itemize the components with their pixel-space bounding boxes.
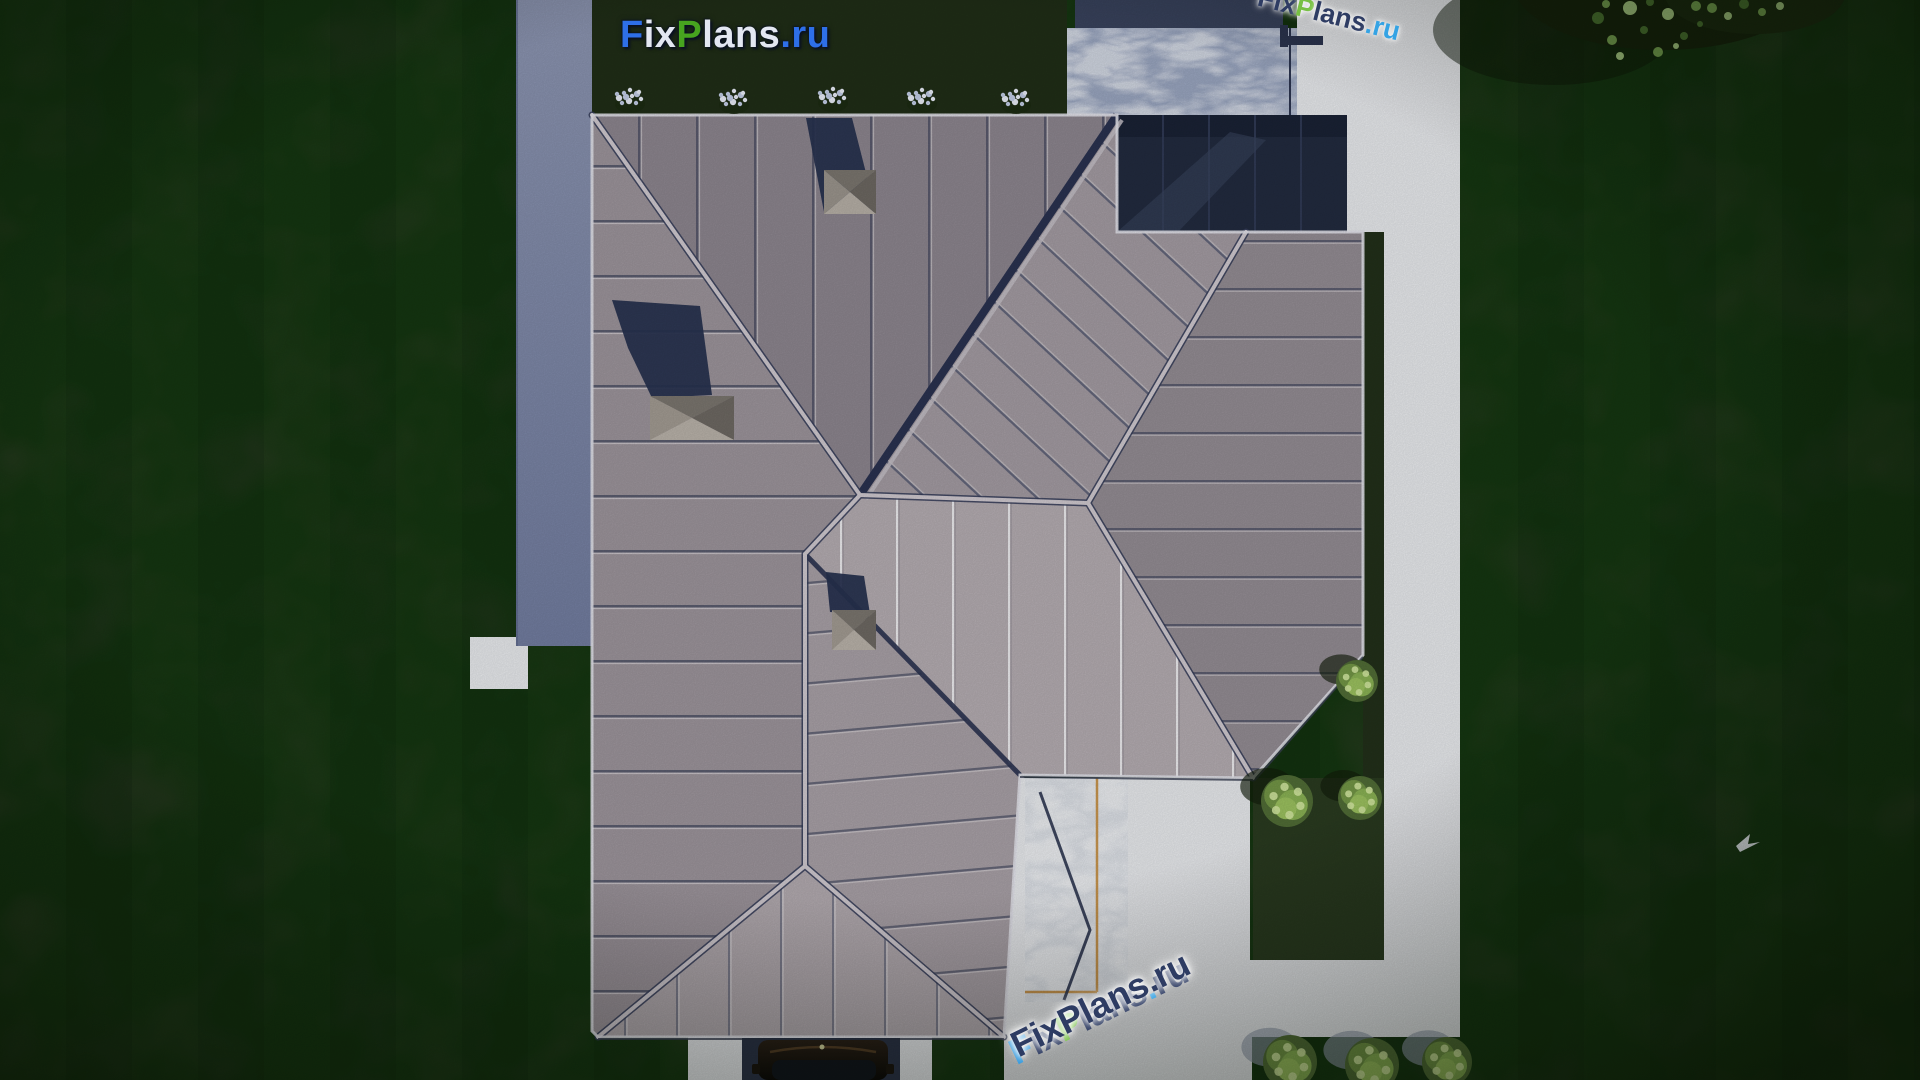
film-grain (0, 0, 1920, 1080)
scene-svg (0, 0, 1920, 1080)
render-canvas: FixPlans.ru FixPlans.ru FixPlans.ru FixP… (0, 0, 1920, 1080)
watermark-letter: ix (644, 14, 677, 56)
watermark-letter: .ru (780, 14, 830, 56)
watermark-letter: lans (702, 14, 780, 56)
watermark-letter: F (620, 14, 644, 56)
watermark-letter: P (676, 14, 702, 56)
fixplans-logo: FixPlans.ru (620, 14, 830, 57)
